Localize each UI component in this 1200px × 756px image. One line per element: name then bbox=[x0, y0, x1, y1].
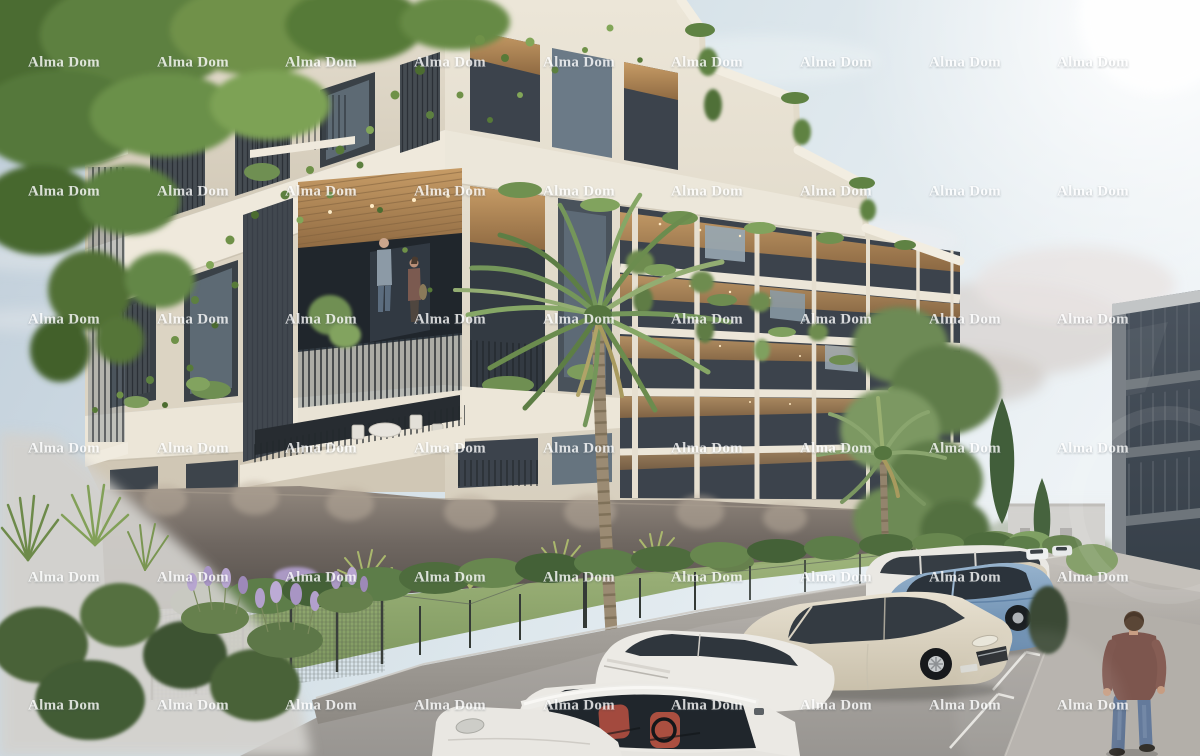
side-mirror bbox=[754, 708, 764, 715]
terrace-table bbox=[369, 423, 401, 437]
terrace-chair bbox=[352, 425, 364, 439]
right-face-ground-row bbox=[458, 433, 612, 488]
scene-canvas bbox=[0, 0, 1200, 756]
handbag bbox=[419, 284, 427, 300]
rendering-apartment-building-scene: Alma DomAlma DomAlma DomAlma DomAlma Dom… bbox=[0, 0, 1200, 756]
